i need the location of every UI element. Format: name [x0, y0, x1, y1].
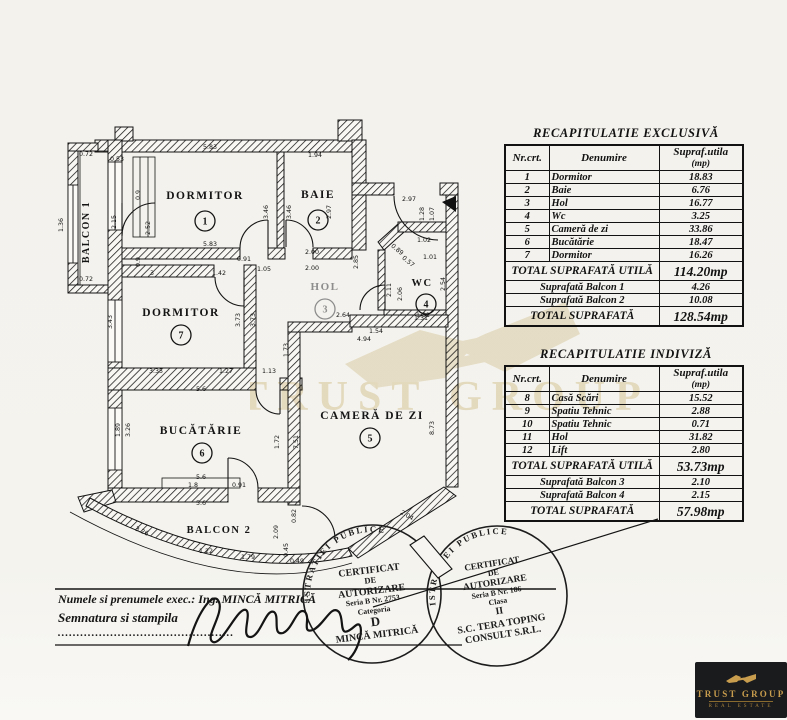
balcon-value: 4.26: [659, 281, 743, 294]
executor-block: Numele si prenumele exec.: Ing. MINCĂ MI…: [58, 592, 458, 639]
row-number-cell: 7: [505, 249, 549, 262]
balcon-label: Suprafată Balcon 3: [505, 476, 659, 489]
room-number-bucatarie: 6: [200, 449, 205, 460]
window-dormitor7: [108, 300, 122, 362]
dimension-label: 0.89: [389, 243, 404, 257]
recap-indiviza-table: Nr.crt. Denumire Supraf.utila(mp) 8 Casă…: [504, 365, 744, 522]
door-arc-wc: [360, 285, 385, 310]
door-arc-dormitor7: [215, 277, 244, 306]
table-row: 1 Dormitor 18.83: [505, 171, 743, 184]
area-value-cell: 31.82: [659, 431, 743, 444]
balcon-label: Suprafată Balcon 1: [505, 281, 659, 294]
row-number-cell: 10: [505, 418, 549, 431]
dimension-label: 1.54: [369, 328, 383, 335]
wall-camera-top-right: [350, 315, 448, 327]
room-number-circle: [195, 211, 215, 231]
room-label-balcon-2: BALCON 2: [187, 525, 252, 536]
table-row: 6 Bucătărie 18.47: [505, 236, 743, 249]
dimension-label: 3: [150, 270, 154, 277]
svg-text:DE: DE: [487, 567, 499, 578]
total-row: TOTAL SUPRAFATĂ 57.98mp: [505, 502, 743, 522]
table-header-row: Nr.crt. Denumire Supraf.utila(mp): [505, 366, 743, 392]
dimension-label: 3.73: [250, 313, 257, 327]
col-denumire: Denumire: [549, 145, 659, 171]
balcon-label: Suprafată Balcon 2: [505, 294, 659, 307]
room-labels: BALCON 1DORMITOR1BAIE2HOL3WC4CAMERĂ DE Z…: [81, 189, 436, 536]
total-label: TOTAL SUPRAFATĂ: [505, 307, 659, 327]
dimension-label: 5.6: [196, 386, 206, 393]
dimension-label: 0.9: [135, 190, 142, 200]
dimension-label: 0.53: [110, 156, 124, 163]
table-row: 10 Spatiu Tehnic 0.71: [505, 418, 743, 431]
dimension-label: 3.73: [235, 313, 242, 327]
dimension-label: 3.43: [107, 315, 114, 329]
dimension-label: 1.05: [257, 266, 271, 273]
svg-text:S.C. TERA TOPING: S.C. TERA TOPING: [457, 612, 547, 637]
executor-name-line: Numele si prenumele exec.: Ing. MINCĂ MI…: [58, 592, 458, 607]
dimension-label: 2.64: [336, 312, 350, 319]
table-row: 5 Cameră de zi 33.86: [505, 223, 743, 236]
dimension-label: 1.22: [199, 548, 213, 555]
dimension-label: 1.42: [212, 270, 226, 277]
wall-camera-left: [288, 332, 300, 505]
row-number-cell: 5: [505, 223, 549, 236]
svg-text:Clasa: Clasa: [488, 596, 508, 608]
dimension-label: 2.00: [305, 265, 319, 272]
balcon2-outer-rail: [70, 512, 352, 574]
recap-indiviza-block: RECAPITULATIE INDIVIZĂ Nr.crt. Denumire …: [504, 347, 748, 522]
svg-text:II: II: [495, 605, 505, 617]
room-number-circle: [192, 443, 212, 463]
room-number-circle: [416, 294, 436, 314]
scanned-floor-plan-page: BALCON 1DORMITOR1BAIE2HOL3WC4CAMERĂ DE Z…: [0, 0, 787, 720]
row-number-cell: 3: [505, 197, 549, 210]
dimension-label: 5.6: [196, 500, 206, 507]
room-label-wc: WC: [411, 278, 432, 289]
room-name-cell: Bucătărie: [549, 236, 659, 249]
room-label-dormitor-1: DORMITOR: [166, 190, 244, 202]
total-utila-label: TOTAL SUPRAFATĂ UTILĂ: [505, 457, 659, 476]
total-utila-label: TOTAL SUPRAFATĂ UTILĂ: [505, 262, 659, 281]
table-header-row: Nr.crt. Denumire Supraf.utila(mp): [505, 145, 743, 171]
balcon-row: Suprafată Balcon 1 4.26: [505, 281, 743, 294]
svg-text:AUTORIZARE: AUTORIZARE: [462, 573, 527, 593]
handshake-logo-icon: [724, 671, 758, 687]
wall-dormitor7-right: [244, 265, 256, 380]
svg-text:DE: DE: [364, 574, 377, 585]
area-value-cell: 3.25: [659, 210, 743, 223]
stamp-ring-text: MINISTERUL ADMINISTRATIEI PUBLICE: [0, 0, 395, 640]
dimension-label: 1.94: [308, 152, 322, 159]
dimension-label: 8.73: [429, 421, 436, 435]
room-number-wc: 4: [424, 300, 429, 311]
wall-balcon1-outer: [68, 143, 78, 293]
dimension-label: 1.28: [419, 207, 426, 221]
entrance-arrow-icon: [442, 196, 456, 212]
dimension-label: 0.72: [79, 276, 93, 283]
row-number-cell: 6: [505, 236, 549, 249]
total-row: TOTAL SUPRAFATĂ 128.54mp: [505, 307, 743, 327]
logo-subtitle: REAL ESTATE: [709, 704, 774, 709]
row-number-cell: 4: [505, 210, 549, 223]
dimension-label: 2.15: [111, 215, 118, 229]
table-title-indiviza: RECAPITULATIE INDIVIZĂ: [504, 347, 748, 362]
table-row: 11 Hol 31.82: [505, 431, 743, 444]
col-suprafata: Supraf.utila(mp): [659, 366, 743, 392]
recap-exclusiva-block: RECAPITULATIE EXCLUSIVĂ Nr.crt. Denumire…: [504, 126, 748, 327]
dimension-label: 3.35: [149, 368, 163, 375]
dimension-label: 2.54: [440, 277, 447, 291]
signature-stamp-line: Semnatura si stampila: [58, 610, 458, 626]
room-name-cell: Spatiu Tehnic: [549, 418, 659, 431]
room-name-cell: Cameră de zi: [549, 223, 659, 236]
dimension-label: 3.26: [134, 526, 150, 538]
balcon2-curve: [70, 498, 352, 574]
wall-stub: [410, 536, 452, 578]
window-dormitor1: [108, 162, 122, 230]
wall-bucatarie-bottom: [108, 488, 228, 502]
dimension-label: 0.91: [237, 256, 251, 263]
dimension-label: 3.46: [263, 205, 270, 219]
col-denumire: Denumire: [549, 366, 659, 392]
svg-text:CONSULT S.R.L.: CONSULT S.R.L.: [464, 624, 542, 647]
row-number-cell: 2: [505, 184, 549, 197]
logo-title: TRUST GROUP: [697, 689, 786, 699]
wardrobe-dormitor1: [133, 157, 155, 237]
dimension-labels: 0.720.535.831.941.362.150.92.520.90.723.…: [58, 144, 447, 565]
balcon-value: 2.10: [659, 476, 743, 489]
dimension-label: 1.02: [417, 237, 431, 244]
dimension-label: 5.83: [203, 144, 217, 151]
row-number-cell: 12: [505, 444, 549, 457]
dimension-label: 0.72: [79, 151, 93, 158]
dimension-label: 2.06: [397, 287, 404, 301]
windows: [68, 162, 122, 470]
dimension-label: 1.89: [115, 423, 122, 437]
room-name-cell: Casă Scări: [549, 392, 659, 405]
room-name-cell: Dormitor: [549, 249, 659, 262]
dimension-label: 1.07: [429, 207, 436, 221]
walls: [68, 120, 458, 558]
door-arc-balcon2: [302, 506, 335, 539]
door-arc-terasa: [228, 458, 258, 488]
dimension-label: 1.01: [423, 254, 437, 261]
col-suprafata: Supraf.utila(mp): [659, 145, 743, 171]
area-value-cell: 16.26: [659, 249, 743, 262]
room-label-balcon-1: BALCON 1: [81, 201, 92, 263]
area-value-cell: 2.88: [659, 405, 743, 418]
room-name-cell: Hol: [549, 197, 659, 210]
dimension-label: 2.04: [399, 509, 415, 522]
room-name-cell: Baie: [549, 184, 659, 197]
dimension-label: 2.97: [402, 196, 416, 203]
room-name-cell: Spatiu Tehnic: [549, 405, 659, 418]
room-number-hol: 3: [323, 305, 328, 316]
room-name-cell: Wc: [549, 210, 659, 223]
total-utila-row: TOTAL SUPRAFATĂ UTILĂ 53.73mp: [505, 457, 743, 476]
total-label: TOTAL SUPRAFATĂ: [505, 502, 659, 522]
dimension-label: 1.13: [262, 368, 276, 375]
dimension-label: 0.9: [135, 257, 142, 267]
balcon-row: Suprafată Balcon 3 2.10: [505, 476, 743, 489]
area-value-cell: 15.52: [659, 392, 743, 405]
dimension-label: 1.73: [283, 343, 290, 357]
area-value-cell: 16.77: [659, 197, 743, 210]
room-number-circle: [308, 210, 328, 230]
area-value-cell: 2.80: [659, 444, 743, 457]
room-label-camera-de-zi: CAMERĂ DE ZI: [320, 408, 424, 422]
table-row: 3 Hol 16.77: [505, 197, 743, 210]
doors: [122, 196, 438, 539]
table-row: 2 Baie 6.76: [505, 184, 743, 197]
balcon-label: Suprafată Balcon 4: [505, 489, 659, 502]
stamp-ring-text: MINISTERUL ADMINISTRATIEI PUBLICE: [0, 0, 520, 674]
row-number-cell: 8: [505, 392, 549, 405]
recap-exclusiva-table: Nr.crt. Denumire Supraf.utila(mp) 1 Dorm…: [504, 144, 744, 327]
dimension-label: 5.6: [196, 474, 206, 481]
dimension-label: 2.00: [305, 249, 319, 256]
room-number-camera-de-zi: 5: [368, 434, 373, 445]
row-number-cell: 9: [505, 405, 549, 418]
balcon-value: 10.08: [659, 294, 743, 307]
wall-entry-top: [352, 183, 394, 195]
total-utila-value: 53.73mp: [659, 457, 743, 476]
dimension-label: 1.8: [188, 482, 198, 489]
table-title-exclusiva: RECAPITULATIE EXCLUSIVĂ: [504, 126, 748, 141]
dimension-label: 5.83: [203, 241, 217, 248]
dimension-label: 1.72: [274, 435, 281, 449]
row-number-cell: 1: [505, 171, 549, 184]
kitchen-counter: [162, 478, 240, 488]
door-arc-dormitor1: [240, 220, 268, 248]
dimension-label: 2.11: [386, 283, 393, 297]
room-number-baie: 2: [316, 216, 321, 227]
total-value: 128.54mp: [659, 307, 743, 327]
balcon-value: 2.15: [659, 489, 743, 502]
dimension-label: 1.79: [241, 554, 255, 561]
total-utila-row: TOTAL SUPRAFATĂ UTILĂ 114.20mp: [505, 262, 743, 281]
col-nrcrt: Nr.crt.: [505, 145, 549, 171]
dotted-line: ........................................…: [58, 627, 458, 639]
wall-left-exterior: [108, 140, 122, 502]
dimension-label: 2.97: [326, 205, 333, 219]
wall-right-exterior: [446, 195, 458, 487]
room-number-circle: [171, 325, 191, 345]
total-utila-value: 114.20mp: [659, 262, 743, 281]
room-name-cell: Dormitor: [549, 171, 659, 184]
dimension-label: 4.94: [357, 336, 371, 343]
room-name-cell: Lift: [549, 444, 659, 457]
dimension-label: 0.82: [291, 509, 298, 523]
table-row: 12 Lift 2.80: [505, 444, 743, 457]
room-number-circle: [360, 428, 380, 448]
logo-divider: [709, 701, 773, 702]
dimension-label: 7.51: [293, 435, 300, 449]
area-value-cell: 18.47: [659, 236, 743, 249]
svg-text:Seria B Nr. 186: Seria B Nr. 186: [471, 584, 522, 601]
room-number-dormitor-1: 1: [203, 217, 208, 228]
area-value-cell: 18.83: [659, 171, 743, 184]
area-value-cell: 0.71: [659, 418, 743, 431]
total-value: 57.98mp: [659, 502, 743, 522]
wall-dormitor7-bottom: [108, 368, 256, 390]
wall-baie-right: [352, 140, 366, 250]
area-value-cell: 33.86: [659, 223, 743, 236]
furniture-lines: [80, 151, 240, 488]
dimension-label: 1.36: [58, 218, 65, 232]
room-number-circle: [315, 299, 335, 319]
svg-text:MINISTERUL ADMINISTRATIEI PU: MINISTERUL ADMINISTRATIEI PUBLICE: [0, 0, 395, 640]
room-label-dormitor-7: DORMITOR: [142, 307, 220, 319]
wall-dormitor1-baie: [277, 152, 284, 250]
dimension-label: 1.27: [219, 368, 233, 375]
dimension-label: 2.52: [145, 221, 152, 235]
dimension-label: 0.57: [400, 255, 415, 269]
table-row: 8 Casă Scări 15.52: [505, 392, 743, 405]
col-nrcrt: Nr.crt.: [505, 366, 549, 392]
dimension-label: 2.09: [273, 525, 280, 539]
area-value-cell: 6.76: [659, 184, 743, 197]
balcon1-inner: [80, 151, 108, 285]
room-name-cell: Hol: [549, 431, 659, 444]
wall-chimney-1: [115, 127, 133, 141]
door-arc-balcony1: [122, 203, 155, 236]
svg-text:MINISTERUL ADMINISTRATIEI PU: MINISTERUL ADMINISTRATIEI PUBLICE: [0, 0, 520, 674]
dimension-label: 3.26: [125, 423, 132, 437]
room-label-hol: HOL: [311, 281, 340, 293]
dimension-label: 1.31: [414, 315, 428, 322]
room-label-baie: BAIE: [301, 189, 335, 201]
window-bucatarie: [108, 408, 122, 470]
wall-top: [95, 140, 362, 152]
svg-text:CERTIFICAT: CERTIFICAT: [338, 561, 401, 579]
dimension-label: 0.49: [290, 558, 304, 565]
trust-group-logo: TRUST GROUP REAL ESTATE: [695, 662, 787, 718]
svg-text:CERTIFICAT: CERTIFICAT: [464, 554, 520, 573]
dimension-label: 2.85: [353, 255, 360, 269]
balcon-row: Suprafată Balcon 2 10.08: [505, 294, 743, 307]
window-balcon1: [68, 185, 78, 263]
table-row: 9 Spatiu Tehnic 2.88: [505, 405, 743, 418]
door-arc-entrance: [394, 196, 438, 240]
balcon-row: Suprafată Balcon 4 2.15: [505, 489, 743, 502]
room-label-bucatarie: BUCĂTĂRIE: [160, 423, 243, 437]
table-row: 7 Dormitor 16.26: [505, 249, 743, 262]
table-row: 4 Wc 3.25: [505, 210, 743, 223]
dimension-label: 3.46: [286, 205, 293, 219]
wall-balcon2-left: [78, 490, 116, 512]
dimension-label: 1.31: [416, 312, 430, 319]
wall-camera-top-left: [288, 322, 352, 332]
room-number-dormitor-7: 7: [179, 331, 184, 342]
wall-wc-diagonal: [378, 224, 404, 250]
door-arc-baie: [286, 220, 313, 247]
wall-camera-diagonal: [348, 487, 456, 558]
door-arc-bucatarie: [256, 390, 280, 414]
row-number-cell: 11: [505, 431, 549, 444]
wall-chimney-2: [338, 120, 362, 141]
dimension-label: 0.45: [283, 543, 290, 557]
dimension-label: 0.91: [232, 482, 246, 489]
